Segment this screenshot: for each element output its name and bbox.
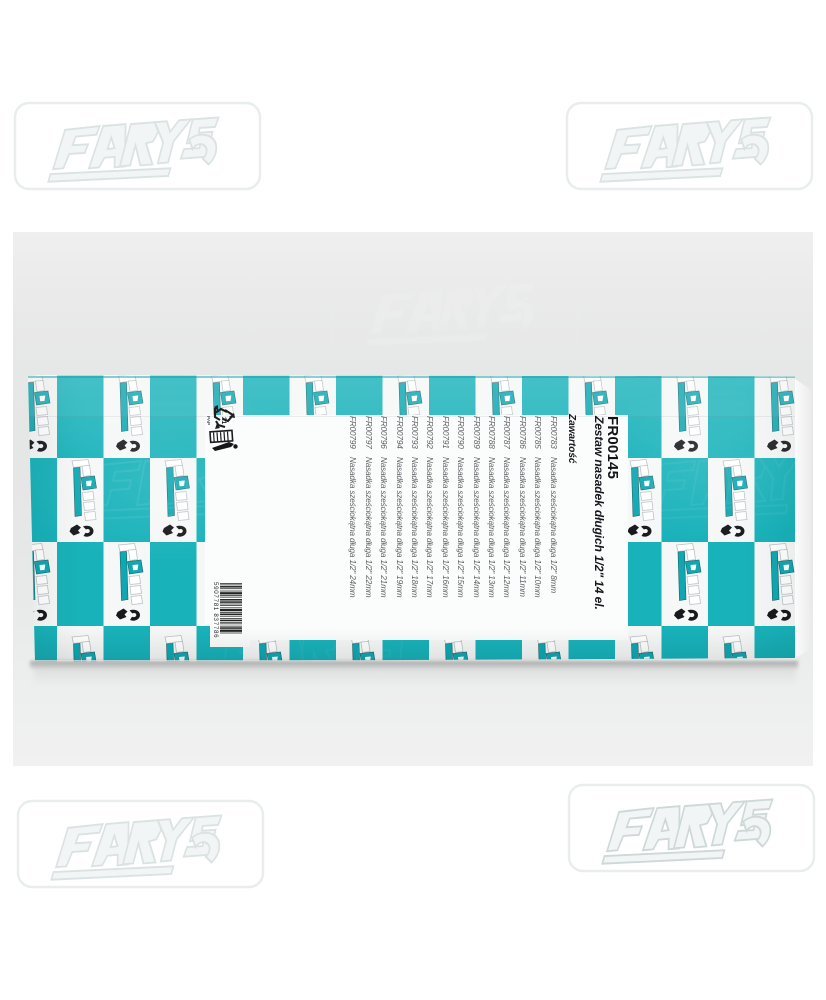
svg-text:21: 21 xyxy=(220,417,227,425)
svg-text:PAP: PAP xyxy=(206,416,211,425)
